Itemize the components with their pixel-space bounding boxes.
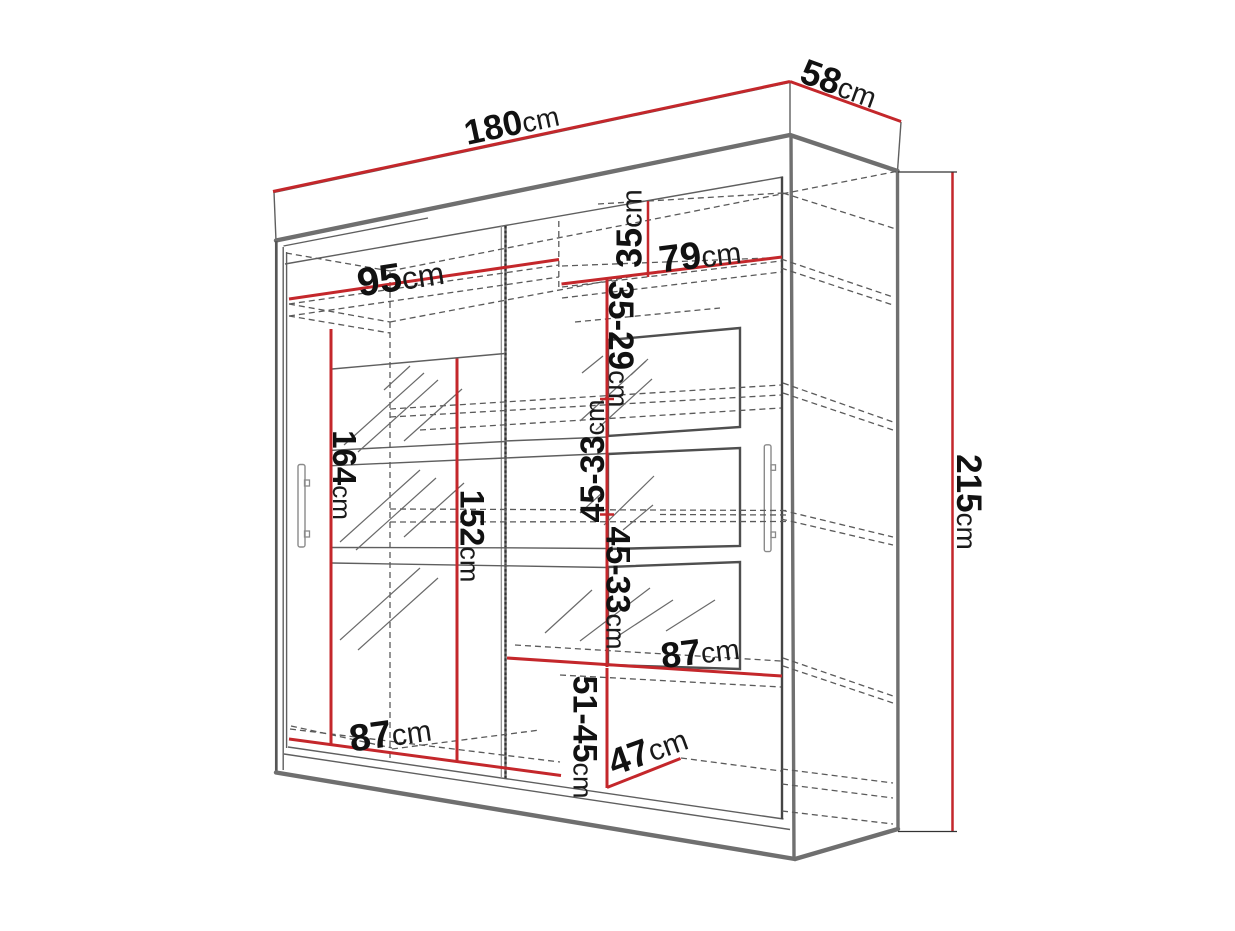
svg-text:45-33cm: 45-33cm [599, 527, 637, 650]
svg-text:45-33cm: 45-33cm [574, 400, 612, 523]
svg-text:152cm: 152cm [453, 490, 491, 583]
svg-text:51-45cm: 51-45cm [566, 676, 604, 799]
svg-text:35-29cm: 35-29cm [601, 281, 640, 408]
svg-text:164cm: 164cm [326, 430, 363, 520]
svg-text:215cm: 215cm [949, 454, 988, 550]
